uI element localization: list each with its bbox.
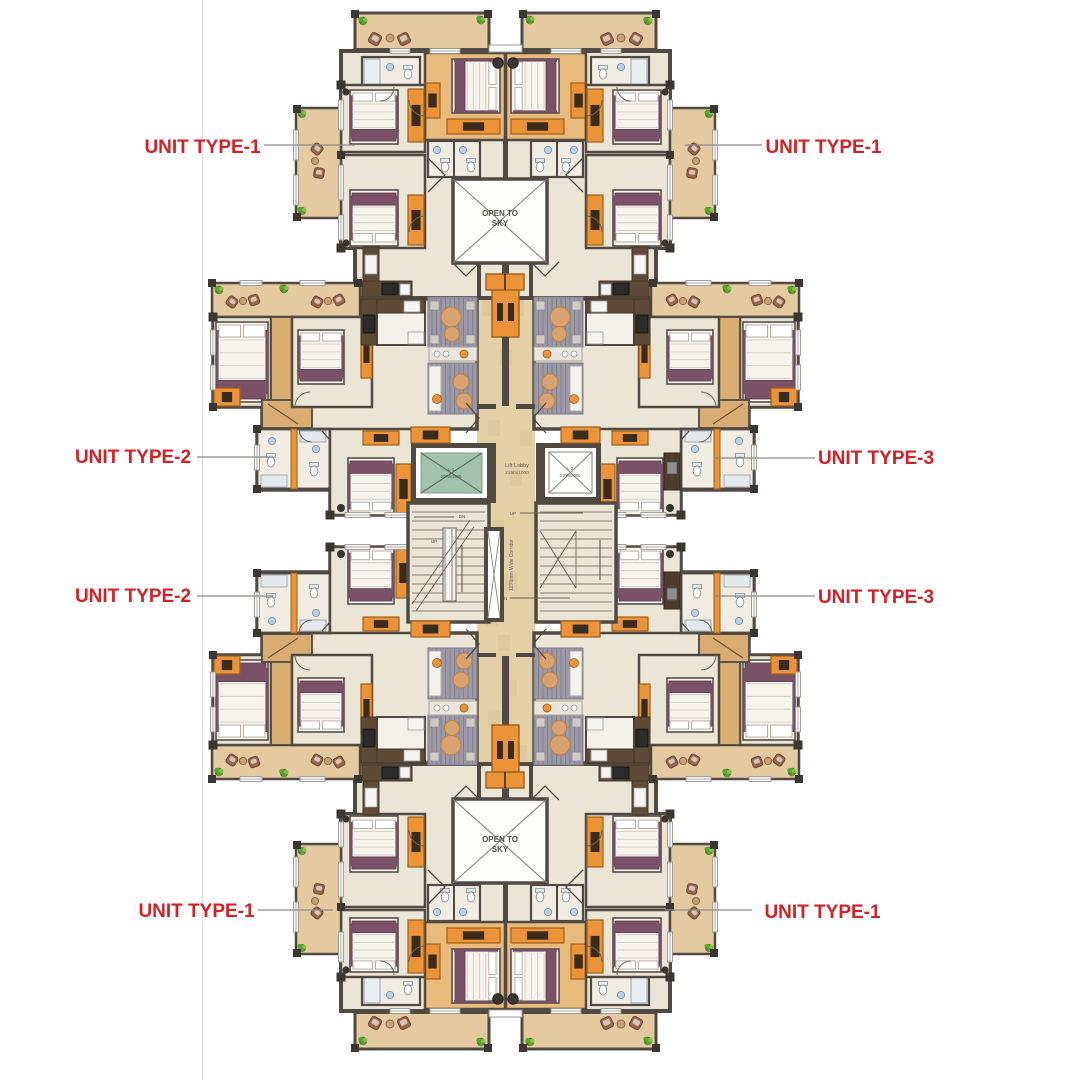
svg-text:2150x1000: 2150x1000 [505, 470, 529, 476]
svg-text:SKY: SKY [492, 219, 509, 228]
svg-text:UNIT TYPE-1: UNIT TYPE-1 [764, 902, 881, 923]
svg-text:UNIT TYPE-2: UNIT TYPE-2 [75, 586, 191, 607]
svg-text:UNIT TYPE-1: UNIT TYPE-1 [765, 137, 882, 158]
svg-text:SKY: SKY [492, 845, 509, 854]
svg-text:1270mm Wide Corridor: 1270mm Wide Corridor [509, 539, 515, 591]
svg-text:2000x1900: 2000x1900 [441, 474, 462, 479]
svg-text:OPEN TO: OPEN TO [482, 835, 518, 844]
svg-text:UNIT TYPE-3: UNIT TYPE-3 [818, 587, 934, 608]
svg-text:2100x2000: 2100x2000 [560, 473, 581, 478]
svg-text:OPEN TO: OPEN TO [482, 209, 518, 218]
svg-text:UP: UP [510, 511, 516, 516]
svg-text:UNIT TYPE-1: UNIT TYPE-1 [138, 901, 255, 922]
svg-text:DN: DN [459, 514, 466, 519]
svg-text:UNIT TYPE-2: UNIT TYPE-2 [75, 447, 191, 468]
svg-text:UNIT TYPE-3: UNIT TYPE-3 [818, 448, 934, 469]
svg-text:L-1: L-1 [448, 467, 455, 472]
svg-text:UNIT TYPE-1: UNIT TYPE-1 [144, 137, 261, 158]
svg-text:Lift Lobby: Lift Lobby [505, 463, 529, 469]
svg-text:L-2: L-2 [567, 466, 574, 471]
svg-text:UP: UP [431, 539, 437, 544]
